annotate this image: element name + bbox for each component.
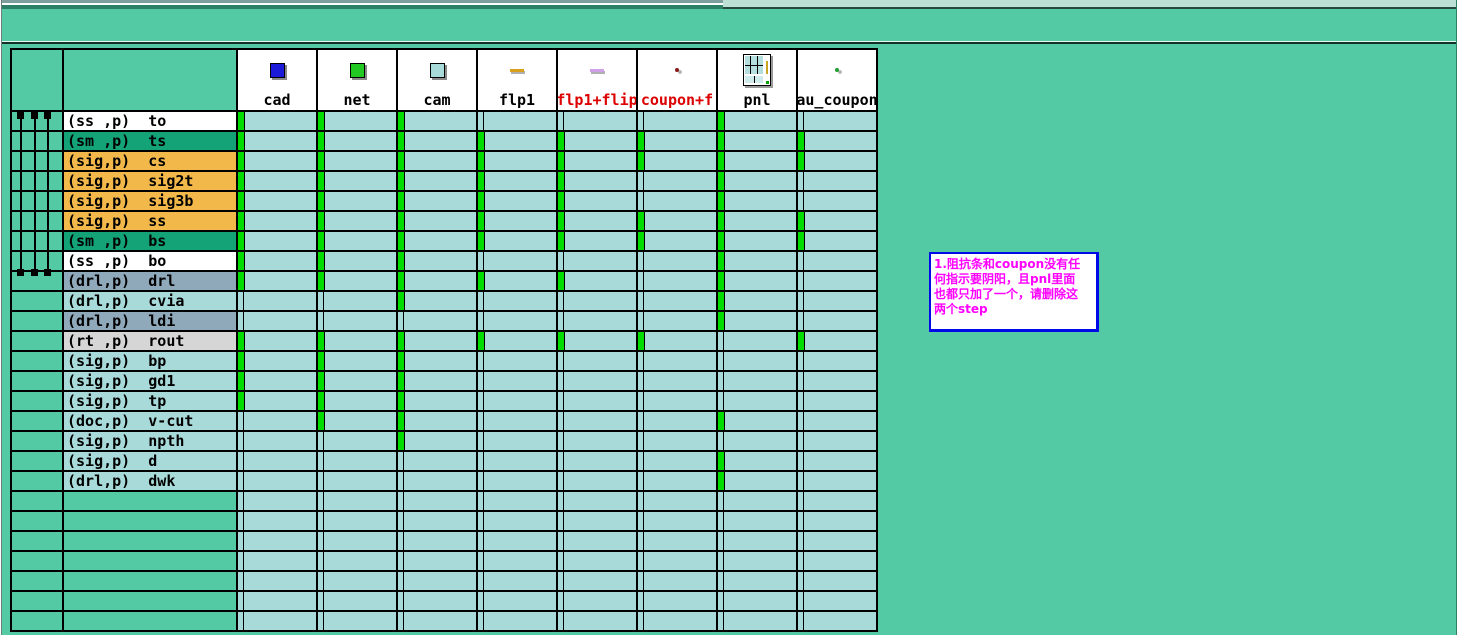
step-icon-wrap [398,50,476,90]
layer-absent-slot [318,572,324,590]
layer-absent-slot [558,552,564,570]
layer-absent-slot [638,572,644,590]
empty-layer-row[interactable] [64,612,236,630]
matrix-cell-coupon+f-sig3b[interactable] [638,192,716,210]
matrix-cell-coupon+f-rout[interactable] [638,332,716,350]
matrix-cell-flp1-ss[interactable] [478,212,556,230]
matrix-cell-cad-gd1[interactable] [238,372,316,390]
matrix-cell-au_coupon-ss[interactable] [798,212,876,230]
matrix-cell-empty[interactable] [398,552,476,570]
matrix-cell-flp1+flip-dwk[interactable] [558,472,636,490]
matrix-cell-coupon+f-sig2t[interactable] [638,172,716,190]
matrix-cell-flp1+flip-d[interactable] [558,452,636,470]
matrix-cell-empty[interactable] [798,512,876,530]
matrix-cell-empty[interactable] [798,592,876,610]
matrix-cell-flp1-d[interactable] [478,452,556,470]
step-header-flp1+flip[interactable]: flp1+flip [558,50,636,110]
note-box[interactable]: 1.阻抗条和coupon没有任何指示要阴阳，且pnl里面也都只加了一个，请删除这… [929,252,1099,332]
matrix-cell-coupon+f-d[interactable] [638,452,716,470]
matrix-cell-cad-dwk[interactable] [238,472,316,490]
matrix-cell-coupon+f-v-cut[interactable] [638,412,716,430]
layer-absent-slot [638,272,644,290]
matrix-cell-pnl-bs[interactable] [718,232,796,250]
matrix-cell-empty[interactable] [238,492,316,510]
matrix-cell-cad-rout[interactable] [238,332,316,350]
matrix-cell-net-dwk[interactable] [318,472,396,490]
matrix-cell-cam-d[interactable] [398,452,476,470]
matrix-cell-flp1+flip-drl[interactable] [558,272,636,290]
layer-absent-slot [638,312,644,330]
matrix-cell-cad-drl[interactable] [238,272,316,290]
matrix-cell-empty[interactable] [398,592,476,610]
empty-layer-row[interactable] [64,492,236,510]
matrix-cell-cad-d[interactable] [238,452,316,470]
matrix-cell-flp1-dwk[interactable] [478,472,556,490]
matrix-cell-pnl-cs[interactable] [718,152,796,170]
matrix-cell-empty[interactable] [558,492,636,510]
matrix-cell-empty[interactable] [798,552,876,570]
matrix-cell-coupon+f-cs[interactable] [638,152,716,170]
matrix-cell-cad-bo[interactable] [238,252,316,270]
matrix-cell-net-sig2t[interactable] [318,172,396,190]
matrix-cell-flp1+flip-ss[interactable] [558,212,636,230]
matrix-cell-pnl-bp[interactable] [718,352,796,370]
matrix-cell-cam-sig2t[interactable] [398,172,476,190]
matrix-cell-empty[interactable] [238,532,316,550]
matrix-cell-au_coupon-cvia[interactable] [798,292,876,310]
matrix-cell-flp1+flip-rout[interactable] [558,332,636,350]
matrix-cell-pnl-cvia[interactable] [718,292,796,310]
matrix-cell-flp1-bo[interactable] [478,252,556,270]
matrix-cell-flp1-drl[interactable] [478,272,556,290]
matrix-cell-flp1+flip-v-cut[interactable] [558,412,636,430]
matrix-cell-net-bp[interactable] [318,352,396,370]
layer-absent-slot [238,412,244,430]
matrix-cell-empty[interactable] [478,532,556,550]
layer-absent-slot [638,352,644,370]
matrix-cell-au_coupon-sig2t[interactable] [798,172,876,190]
matrix-cell-empty[interactable] [398,512,476,530]
matrix-cell-empty[interactable] [478,512,556,530]
matrix-cell-flp1-sig2t[interactable] [478,172,556,190]
matrix-cell-au_coupon-gd1[interactable] [798,372,876,390]
matrix-cell-net-v-cut[interactable] [318,412,396,430]
matrix-cell-flp1-rout[interactable] [478,332,556,350]
matrix-cell-net-sig3b[interactable] [318,192,396,210]
layer-absent-slot [238,292,244,310]
matrix-cell-net-to[interactable] [318,112,396,130]
matrix-cell-au_coupon-cs[interactable] [798,152,876,170]
matrix-cell-flp1-ldi[interactable] [478,312,556,330]
matrix-cell-coupon+f-gd1[interactable] [638,372,716,390]
matrix-cell-pnl-bo[interactable] [718,252,796,270]
matrix-cell-flp1+flip-bs[interactable] [558,232,636,250]
layer-row-gd1[interactable]: (sig,p) gd1 [64,372,236,390]
layer-absent-slot [558,372,564,390]
layer-row-ss[interactable]: (sig,p) ss [64,212,236,230]
layer-presence-bar [398,372,405,390]
layer-absent-slot [398,532,404,550]
matrix-cell-cad-ts[interactable] [238,132,316,150]
matrix-cell-empty[interactable] [558,572,636,590]
matrix-cell-cad-to[interactable] [238,112,316,130]
matrix-cell-empty[interactable] [718,552,796,570]
matrix-cell-flp1+flip-sig2t[interactable] [558,172,636,190]
layer-absent-slot [798,352,804,370]
step-header-au_coupon[interactable]: au_coupon [798,50,876,110]
matrix-cell-au_coupon-npth[interactable] [798,432,876,450]
matrix-cell-cam-sig3b[interactable] [398,192,476,210]
layer-absent-slot [238,452,244,470]
empty-layer-row[interactable] [64,512,236,530]
matrix-cell-pnl-sig3b[interactable] [718,192,796,210]
matrix-cell-empty[interactable] [318,592,396,610]
matrix-cell-flp1+flip-bo[interactable] [558,252,636,270]
matrix-cell-empty[interactable] [718,592,796,610]
matrix-cell-coupon+f-bs[interactable] [638,232,716,250]
matrix-cell-flp1+flip-ldi[interactable] [558,312,636,330]
layer-presence-bar [398,352,405,370]
matrix-cell-pnl-d[interactable] [718,452,796,470]
layer-presence-bar [478,232,485,250]
matrix-cell-cad-ss[interactable] [238,212,316,230]
layer-absent-slot [478,372,484,390]
matrix-cell-au_coupon-rout[interactable] [798,332,876,350]
layer-absent-slot [398,612,404,630]
matrix-cell-pnl-v-cut[interactable] [718,412,796,430]
layer-absent-slot [238,552,244,570]
matrix-cell-flp1+flip-npth[interactable] [558,432,636,450]
matrix-cell-pnl-dwk[interactable] [718,472,796,490]
matrix-cell-au_coupon-dwk[interactable] [798,472,876,490]
layer-presence-bar [318,232,325,250]
matrix-cell-cam-cvia[interactable] [398,292,476,310]
matrix-cell-au_coupon-ts[interactable] [798,132,876,150]
matrix-cell-cad-cvia[interactable] [238,292,316,310]
layer-row-d[interactable]: (sig,p) d [64,452,236,470]
layer-row-sig2t[interactable]: (sig,p) sig2t [64,172,236,190]
matrix-cell-empty[interactable] [318,492,396,510]
layer-absent-slot [558,392,564,410]
layer-presence-bar [558,192,565,210]
matrix-cell-coupon+f-bo[interactable] [638,252,716,270]
matrix-cell-net-bs[interactable] [318,232,396,250]
layer-presence-bar [558,132,565,150]
matrix-cell-empty[interactable] [638,492,716,510]
matrix-cell-empty[interactable] [638,532,716,550]
matrix-cell-net-d[interactable] [318,452,396,470]
matrix-cell-flp1+flip-to[interactable] [558,112,636,130]
layer-row-cvia[interactable]: (drl,p) cvia [64,292,236,310]
matrix-cell-empty[interactable] [238,552,316,570]
layer-absent-slot [638,512,644,530]
layer-absent-slot [638,252,644,270]
matrix-cell-pnl-sig2t[interactable] [718,172,796,190]
layer-row-cs[interactable]: (sig,p) cs [64,152,236,170]
layer-absent-slot [318,512,324,530]
layer-row-rout[interactable]: (rt ,p) rout [64,332,236,350]
matrix-cell-cad-npth[interactable] [238,432,316,450]
matrix-cell-empty[interactable] [638,612,716,630]
matrix-cell-empty[interactable] [318,612,396,630]
step-header-coupon+f[interactable]: coupon+f [638,50,716,110]
matrix-cell-net-npth[interactable] [318,432,396,450]
step-header-cad[interactable]: cad [238,50,316,110]
layer-presence-bar [318,132,325,150]
empty-layer-row[interactable] [64,592,236,610]
matrix-cell-empty[interactable] [238,592,316,610]
matrix-cell-coupon+f-dwk[interactable] [638,472,716,490]
matrix-cell-pnl-tp[interactable] [718,392,796,410]
step-header-flp1[interactable]: flp1 [478,50,556,110]
matrix-cell-cam-bs[interactable] [398,232,476,250]
matrix-cell-net-ldi[interactable] [318,312,396,330]
step-header-label: flp1+flip [558,90,636,110]
layer-presence-bar [718,232,725,250]
matrix-cell-empty[interactable] [238,572,316,590]
layer-absent-slot [718,552,724,570]
matrix-cell-flp1-bp[interactable] [478,352,556,370]
span-column-cell [12,312,62,330]
matrix-cell-coupon+f-to[interactable] [638,112,716,130]
matrix-cell-cad-ldi[interactable] [238,312,316,330]
matrix-cell-net-tp[interactable] [318,392,396,410]
span-column-cell [12,432,62,450]
matrix-cell-empty[interactable] [558,612,636,630]
matrix-cell-empty[interactable] [558,532,636,550]
matrix-cell-flp1+flip-ts[interactable] [558,132,636,150]
matrix-cell-coupon+f-cvia[interactable] [638,292,716,310]
layer-presence-bar [718,412,725,430]
layer-row-bs[interactable]: (sm ,p) bs [64,232,236,250]
layer-row-tp[interactable]: (sig,p) tp [64,392,236,410]
matrix-cell-cam-bp[interactable] [398,352,476,370]
matrix-cell-au_coupon-bo[interactable] [798,252,876,270]
matrix-cell-empty[interactable] [478,572,556,590]
matrix-cell-cad-sig3b[interactable] [238,192,316,210]
span-column-cell [12,152,62,170]
matrix-cell-empty[interactable] [398,572,476,590]
matrix-cell-flp1-to[interactable] [478,112,556,130]
matrix-cell-cad-bp[interactable] [238,352,316,370]
layer-presence-bar [558,332,565,350]
matrix-cell-flp1+flip-sig3b[interactable] [558,192,636,210]
matrix-cell-flp1+flip-gd1[interactable] [558,372,636,390]
layer-absent-slot [718,512,724,530]
layer-row-bp[interactable]: (sig,p) bp [64,352,236,370]
layer-row-v-cut[interactable]: (doc,p) v-cut [64,412,236,430]
step-header-net[interactable]: net [318,50,396,110]
matrix-cell-cam-tp[interactable] [398,392,476,410]
layer-absent-slot [318,432,324,450]
matrix-cell-coupon+f-tp[interactable] [638,392,716,410]
layer-presence-bar [638,332,645,350]
matrix-cell-flp1-ts[interactable] [478,132,556,150]
matrix-cell-net-gd1[interactable] [318,372,396,390]
step-icon-wrap [638,50,716,90]
matrix-cell-empty[interactable] [558,512,636,530]
matrix-cell-coupon+f-drl[interactable] [638,272,716,290]
layer-absent-slot [798,552,804,570]
matrix-cell-pnl-gd1[interactable] [718,372,796,390]
matrix-cell-cam-cs[interactable] [398,152,476,170]
matrix-cell-cam-to[interactable] [398,112,476,130]
layer-row-npth[interactable]: (sig,p) npth [64,432,236,450]
matrix-cell-empty[interactable] [318,572,396,590]
matrix-cell-empty[interactable] [558,552,636,570]
matrix-cell-empty[interactable] [718,492,796,510]
layer-presence-bar [798,212,805,230]
matrix-cell-flp1+flip-cs[interactable] [558,152,636,170]
title-bar-right [723,0,1457,7]
layer-row-sig3b[interactable]: (sig,p) sig3b [64,192,236,210]
matrix-cell-empty[interactable] [798,532,876,550]
matrix-cell-cam-drl[interactable] [398,272,476,290]
matrix-cell-cam-ts[interactable] [398,132,476,150]
matrix-cell-flp1-cvia[interactable] [478,292,556,310]
matrix-cell-empty[interactable] [638,512,716,530]
matrix-cell-cam-bo[interactable] [398,252,476,270]
matrix-cell-cam-dwk[interactable] [398,472,476,490]
layer-row-drl[interactable]: (drl,p) drl [64,272,236,290]
matrix-cell-empty[interactable] [718,572,796,590]
matrix-cell-net-cs[interactable] [318,152,396,170]
layer-absent-slot [478,292,484,310]
matrix-cell-cad-tp[interactable] [238,392,316,410]
matrix-cell-pnl-ts[interactable] [718,132,796,150]
matrix-cell-empty[interactable] [638,572,716,590]
matrix-cell-net-ss[interactable] [318,212,396,230]
empty-layer-row[interactable] [64,552,236,570]
matrix-cell-net-drl[interactable] [318,272,396,290]
matrix-cell-flp1-sig3b[interactable] [478,192,556,210]
layer-absent-slot [798,572,804,590]
matrix-cell-flp1-cs[interactable] [478,152,556,170]
matrix-cell-au_coupon-ldi[interactable] [798,312,876,330]
matrix-cell-empty[interactable] [718,532,796,550]
matrix-cell-cam-v-cut[interactable] [398,412,476,430]
layer-presence-bar [398,432,405,450]
layer-absent-slot [478,352,484,370]
matrix-cell-cam-npth[interactable] [398,432,476,450]
matrix-cell-au_coupon-bp[interactable] [798,352,876,370]
matrix-cell-empty[interactable] [638,592,716,610]
matrix-cell-cad-v-cut[interactable] [238,412,316,430]
matrix-cell-pnl-drl[interactable] [718,272,796,290]
matrix-cell-pnl-npth[interactable] [718,432,796,450]
matrix-cell-empty[interactable] [478,612,556,630]
layer-row-ts[interactable]: (sm ,p) ts [64,132,236,150]
matrix-cell-empty[interactable] [798,572,876,590]
matrix-cell-empty[interactable] [638,552,716,570]
matrix-cell-flp1+flip-tp[interactable] [558,392,636,410]
matrix-cell-au_coupon-sig3b[interactable] [798,192,876,210]
span-column-cell [12,552,62,570]
span-column-cell [12,192,62,210]
matrix-cell-cam-ldi[interactable] [398,312,476,330]
layer-absent-slot [478,252,484,270]
matrix-cell-au_coupon-v-cut[interactable] [798,412,876,430]
matrix-cell-au_coupon-bs[interactable] [798,232,876,250]
matrix-cell-cad-cs[interactable] [238,152,316,170]
matrix-cell-empty[interactable] [478,492,556,510]
matrix-cell-pnl-to[interactable] [718,112,796,130]
matrix-cell-cad-bs[interactable] [238,232,316,250]
matrix-cell-pnl-ldi[interactable] [718,312,796,330]
matrix-cell-au_coupon-d[interactable] [798,452,876,470]
matrix-cell-au_coupon-tp[interactable] [798,392,876,410]
matrix-cell-coupon+f-bp[interactable] [638,352,716,370]
matrix-cell-net-bo[interactable] [318,252,396,270]
step-header-pnl[interactable]: pnl [718,50,796,110]
layer-absent-slot [798,172,804,190]
matrix-cell-au_coupon-to[interactable] [798,112,876,130]
empty-layer-row[interactable] [64,572,236,590]
matrix-cell-net-cvia[interactable] [318,292,396,310]
layer-absent-slot [558,592,564,610]
layer-row-dwk[interactable]: (drl,p) dwk [64,472,236,490]
matrix-cell-flp1-v-cut[interactable] [478,412,556,430]
matrix-cell-cam-rout[interactable] [398,332,476,350]
matrix-cell-empty[interactable] [798,492,876,510]
matrix-cell-empty[interactable] [238,512,316,530]
matrix-cell-pnl-ss[interactable] [718,212,796,230]
matrix-cell-empty[interactable] [318,552,396,570]
matrix-cell-pnl-rout[interactable] [718,332,796,350]
matrix-cell-flp1+flip-cvia[interactable] [558,292,636,310]
matrix-cell-empty[interactable] [398,612,476,630]
matrix-cell-empty[interactable] [718,512,796,530]
matrix-cell-cad-sig2t[interactable] [238,172,316,190]
matrix-cell-coupon+f-ldi[interactable] [638,312,716,330]
matrix-cell-empty[interactable] [478,552,556,570]
matrix-cell-au_coupon-drl[interactable] [798,272,876,290]
matrix-cell-net-rout[interactable] [318,332,396,350]
span-column-cell [12,612,62,630]
matrix-cell-empty[interactable] [398,532,476,550]
layer-presence-bar [478,212,485,230]
matrix-cell-cam-ss[interactable] [398,212,476,230]
matrix-cell-coupon+f-npth[interactable] [638,432,716,450]
matrix-cell-empty[interactable] [318,532,396,550]
layer-row-bo[interactable]: (ss ,p) bo [64,252,236,270]
matrix-cell-coupon+f-ss[interactable] [638,212,716,230]
step-header-cam[interactable]: cam [398,50,476,110]
layer-row-to[interactable]: (ss ,p) to [64,112,236,130]
matrix-cell-empty[interactable] [238,612,316,630]
matrix-cell-empty[interactable] [558,592,636,610]
matrix-cell-empty[interactable] [318,512,396,530]
layer-absent-slot [638,552,644,570]
empty-layer-row[interactable] [64,532,236,550]
matrix-cell-empty[interactable] [478,592,556,610]
matrix-cell-flp1-bs[interactable] [478,232,556,250]
matrix-cell-flp1-npth[interactable] [478,432,556,450]
matrix-cell-coupon+f-ts[interactable] [638,132,716,150]
layer-absent-slot [798,512,804,530]
matrix-cell-empty[interactable] [398,492,476,510]
layer-presence-bar [238,352,245,370]
layer-absent-slot [558,252,564,270]
layer-row-ldi[interactable]: (drl,p) ldi [64,312,236,330]
matrix-cell-empty[interactable] [718,612,796,630]
matrix-cell-net-ts[interactable] [318,132,396,150]
matrix-cell-flp1-tp[interactable] [478,392,556,410]
matrix-cell-flp1-gd1[interactable] [478,372,556,390]
matrix-cell-cam-gd1[interactable] [398,372,476,390]
matrix-cell-flp1+flip-bp[interactable] [558,352,636,370]
matrix-cell-empty[interactable] [798,612,876,630]
